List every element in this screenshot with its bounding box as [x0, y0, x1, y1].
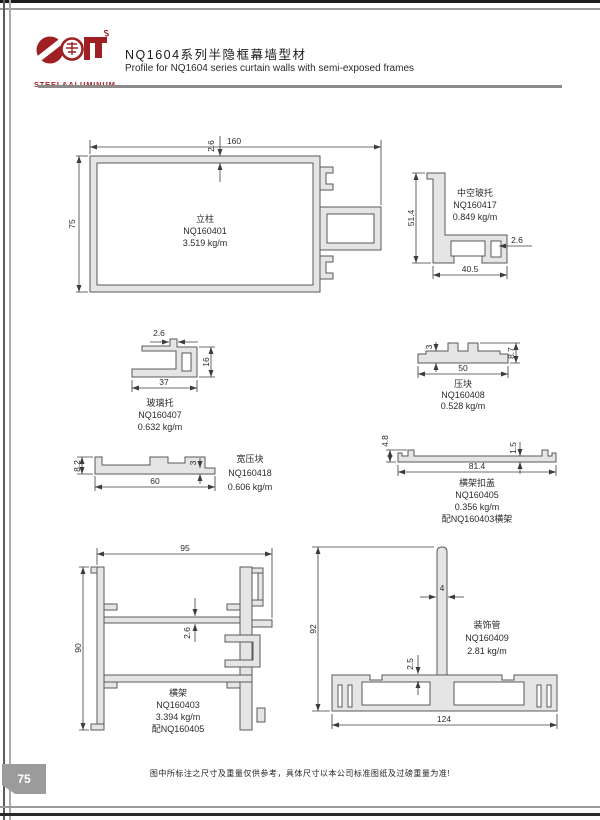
profile-name: 压块 — [454, 378, 472, 389]
logo-trademark-squiggle — [105, 31, 109, 36]
profile-shape — [132, 339, 197, 377]
page-spine-outer — [3, 0, 5, 820]
page-rule-top — [0, 8, 600, 10]
dim-height: 92 — [308, 624, 318, 634]
profile-name: 横架 — [169, 687, 187, 698]
page-border-bottom — [0, 813, 600, 816]
drawing-wide-pressure-block-canvas: 8.2 3 60 宽压块 NQ160418 0.606 kg/m — [55, 436, 305, 508]
drawing-beam-cap-canvas: 4.8 1.5 81.4 横架扣盖 NQ160405 0.356 kg/m 配N… — [380, 424, 580, 529]
dim-height: 8.2 — [72, 460, 82, 472]
drawing-wide-pressure-block: 8.2 3 60 宽压块 NQ160418 0.606 kg/m — [55, 436, 305, 513]
header-divider — [38, 85, 562, 88]
profile-weight: 2.81 kg/m — [467, 646, 507, 656]
dim-width: 60 — [150, 476, 160, 486]
drawing-beam: 95 90 2.6 横架 NQ160403 3.394 kg/m 配NQ1604… — [55, 540, 305, 753]
dim-wall: 2.6 — [206, 140, 216, 152]
profile-name: 横架扣盖 — [459, 477, 495, 488]
dim-thickness: 3 — [424, 344, 434, 349]
profile-code: NQ160401 — [183, 226, 227, 236]
dim-wall: 2.6 — [182, 627, 192, 639]
dim-width: 81.4 — [469, 461, 486, 471]
profile-code: NQ160405 — [455, 490, 499, 500]
profile-weight: 0.528 kg/m — [441, 401, 486, 411]
dim-wall: 2.5 — [405, 658, 415, 670]
drawing-mullion-canvas: 160 75 2.6 立柱 NQ160401 3.519 kg/m — [68, 134, 398, 306]
profile-fin — [437, 547, 447, 675]
dim-height: 4.8 — [380, 435, 390, 447]
dim-height: 90 — [73, 643, 83, 653]
dim-box-height: 16 — [201, 357, 211, 367]
dim-width: 37 — [159, 377, 169, 387]
dim-wall: 2.6 — [153, 328, 165, 338]
profile-code: NQ160409 — [465, 633, 509, 643]
profile-note: 配NQ160403横架 — [442, 513, 513, 524]
profile-top-hook — [320, 167, 333, 190]
profile-code: NQ160417 — [453, 200, 497, 210]
profile-shapes — [90, 156, 381, 292]
drawing-hollow-glass-support: 51.4 40.5 2.6 中空玻托 NQ160417 0.849 kg/m — [400, 158, 590, 308]
profile-weight: 0.849 kg/m — [453, 212, 498, 222]
drawing-beam-canvas: 95 90 2.6 横架 NQ160403 3.394 kg/m 配NQ1604… — [55, 540, 305, 748]
dim-thickness: 1.5 — [508, 442, 518, 454]
dim-width: 40.5 — [462, 264, 479, 274]
dim-width: 95 — [180, 543, 190, 553]
dim-thickness: 3 — [188, 460, 198, 465]
drawing-glass-support-canvas: 2.6 16 37 玻璃托 NQ160407 0.632 kg/m — [88, 316, 238, 436]
dim-height: 75 — [68, 219, 77, 229]
dim-width: 160 — [227, 136, 241, 146]
dim-height: 51.4 — [406, 209, 416, 226]
drawing-pressure-block: 3 8.7 50 压块 NQ160408 0.528 kg/m — [392, 330, 527, 423]
page-border-top — [0, 0, 600, 3]
drawing-beam-cap: 4.8 1.5 81.4 横架扣盖 NQ160405 0.356 kg/m 配N… — [380, 424, 580, 534]
profile-nose-box — [320, 207, 381, 250]
dim-fin: 4 — [440, 583, 445, 593]
drawing-decorative-tube-canvas: 92 4 2.5 124 装饰管 NQ160409 2.81 kg/m — [298, 533, 588, 755]
profile-name: 立柱 — [196, 213, 214, 224]
dim-width: 124 — [437, 714, 451, 724]
profile-name: 玻璃托 — [146, 397, 173, 408]
page-rule-bottom — [0, 806, 600, 808]
profile-weight: 0.356 kg/m — [455, 502, 500, 512]
logo-n-glyph — [84, 37, 107, 60]
drawing-glass-support: 2.6 16 37 玻璃托 NQ160407 0.632 kg/m — [88, 316, 238, 441]
profile-name: 装饰管 — [473, 619, 500, 630]
profile-bottom-hook — [320, 256, 333, 279]
profile-tube — [90, 156, 320, 292]
dim-width: 50 — [458, 363, 468, 373]
profile-weight: 0.606 kg/m — [228, 482, 273, 492]
drawing-hollow-glass-support-canvas: 51.4 40.5 2.6 中空玻托 NQ160417 0.849 kg/m — [400, 158, 590, 303]
profile-code: NQ160403 — [156, 700, 200, 710]
brand-logo: STEEL&ALUMINUM — [34, 28, 112, 89]
profile-code: NQ160408 — [441, 390, 485, 400]
page-title-chinese: NQ1604系列半隐框幕墙型材 — [125, 44, 307, 63]
brand-logo-mark — [34, 28, 110, 74]
profile-weight: 3.519 kg/m — [183, 238, 228, 248]
profile-name: 中空玻托 — [457, 187, 493, 198]
profile-weight: 0.632 kg/m — [138, 422, 183, 432]
drawing-decorative-tube: 92 4 2.5 124 装饰管 NQ160409 2.81 kg/m — [298, 533, 588, 760]
drawing-pressure-block-canvas: 3 8.7 50 压块 NQ160408 0.528 kg/m — [392, 330, 527, 418]
catalog-page: STEEL&ALUMINUM NQ1604系列半隐框幕墙型材 Profile f… — [0, 0, 600, 820]
page-spine-inner — [9, 0, 11, 820]
profile-note: 配NQ160405 — [152, 724, 205, 734]
profile-web — [104, 617, 252, 623]
drawing-mullion: 160 75 2.6 立柱 NQ160401 3.519 kg/m — [68, 134, 398, 311]
footer-disclaimer: 图中所标注之尺寸及重量仅供参考，具体尺寸以本公司标准图纸及过磅重量为准! — [0, 768, 600, 779]
dim-wall: 2.6 — [511, 235, 523, 245]
page-title-english: Profile for NQ1604 series curtain walls … — [125, 63, 414, 74]
profile-base — [332, 675, 557, 711]
profile-shapes — [332, 547, 557, 711]
profile-name: 宽压块 — [236, 453, 263, 464]
profile-code: NQ160418 — [228, 468, 272, 478]
profile-code: NQ160407 — [138, 410, 182, 420]
dim-height: 8.7 — [506, 347, 516, 359]
profile-weight: 3.394 kg/m — [156, 712, 201, 722]
